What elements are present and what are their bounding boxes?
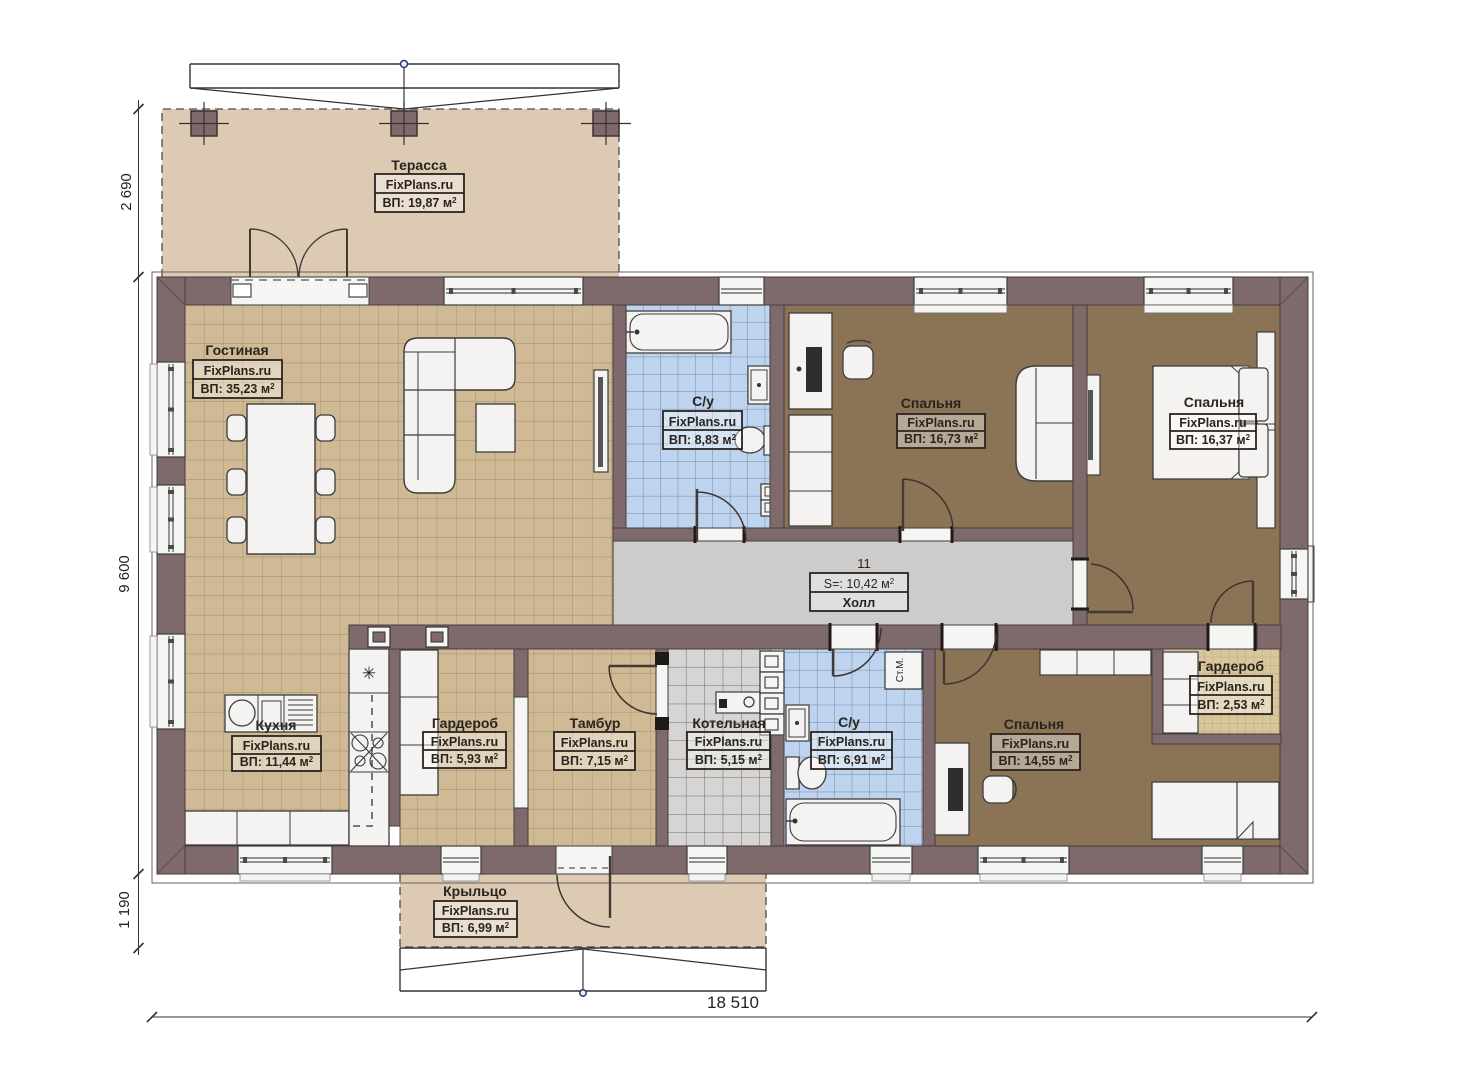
svg-text:Холл: Холл [843,595,876,610]
svg-text:ВП: 5,93 м2: ВП: 5,93 м2 [431,752,499,766]
svg-text:FixPlans.ru: FixPlans.ru [818,735,885,749]
svg-text:FixPlans.ru: FixPlans.ru [431,735,498,749]
svg-text:FixPlans.ru: FixPlans.ru [442,904,509,918]
svg-text:ВП: 11,44 м2: ВП: 11,44 м2 [240,755,314,769]
svg-text:С/у: С/у [692,393,714,409]
svg-text:Спальня: Спальня [1184,394,1244,410]
svg-text:FixPlans.ru: FixPlans.ru [1002,737,1069,751]
svg-text:FixPlans.ru: FixPlans.ru [907,416,974,430]
svg-text:FixPlans.ru: FixPlans.ru [204,364,271,378]
svg-text:С/у: С/у [838,714,860,730]
svg-text:Ст.М.: Ст.М. [895,658,906,683]
svg-text:FixPlans.ru: FixPlans.ru [1197,680,1264,694]
svg-text:Крыльцо: Крыльцо [443,883,507,899]
svg-text:Кухня: Кухня [256,717,297,733]
svg-text:Терасса: Терасса [391,157,447,173]
svg-text:Гардероб: Гардероб [1198,658,1265,674]
svg-text:ВП: 7,15 м2: ВП: 7,15 м2 [561,754,629,768]
svg-text:✳: ✳ [362,664,376,683]
svg-text:ВП: 16,73 м2: ВП: 16,73 м2 [904,432,979,446]
svg-text:Тамбур: Тамбур [570,715,621,731]
svg-text:ВП: 6,99 м2: ВП: 6,99 м2 [442,921,510,935]
svg-text:FixPlans.ru: FixPlans.ru [669,415,736,429]
svg-text:FixPlans.ru: FixPlans.ru [386,178,453,192]
svg-text:Котельная: Котельная [692,715,765,731]
svg-text:1 190: 1 190 [116,891,133,929]
svg-text:S=: 10,42 м2: S=: 10,42 м2 [824,577,895,591]
svg-text:Спальня: Спальня [901,395,961,411]
svg-text:ВП: 8,83 м2: ВП: 8,83 м2 [669,433,737,447]
svg-text:ВП: 5,15 м2: ВП: 5,15 м2 [695,753,763,767]
svg-text:FixPlans.ru: FixPlans.ru [1179,416,1246,430]
svg-text:ВП: 2,53 м2: ВП: 2,53 м2 [1197,698,1265,712]
svg-text:Спальня: Спальня [1004,716,1064,732]
svg-text:11: 11 [857,556,871,571]
svg-text:18 510: 18 510 [707,993,759,1012]
svg-text:ВП: 6,91 м2: ВП: 6,91 м2 [818,753,886,767]
svg-text:9 600: 9 600 [116,555,133,593]
svg-text:ВП: 35,23 м2: ВП: 35,23 м2 [200,382,275,396]
svg-text:Гостиная: Гостиная [205,342,268,358]
svg-text:FixPlans.ru: FixPlans.ru [243,739,310,753]
svg-text:FixPlans.ru: FixPlans.ru [561,736,628,750]
svg-text:ВП: 16,37 м2: ВП: 16,37 м2 [1176,433,1251,447]
svg-text:FixPlans.ru: FixPlans.ru [695,735,762,749]
svg-text:Гардероб: Гардероб [432,715,499,731]
svg-text:2 690: 2 690 [118,173,135,211]
svg-text:ВП: 14,55 м2: ВП: 14,55 м2 [998,754,1073,768]
svg-text:ВП: 19,87 м2: ВП: 19,87 м2 [382,196,457,210]
